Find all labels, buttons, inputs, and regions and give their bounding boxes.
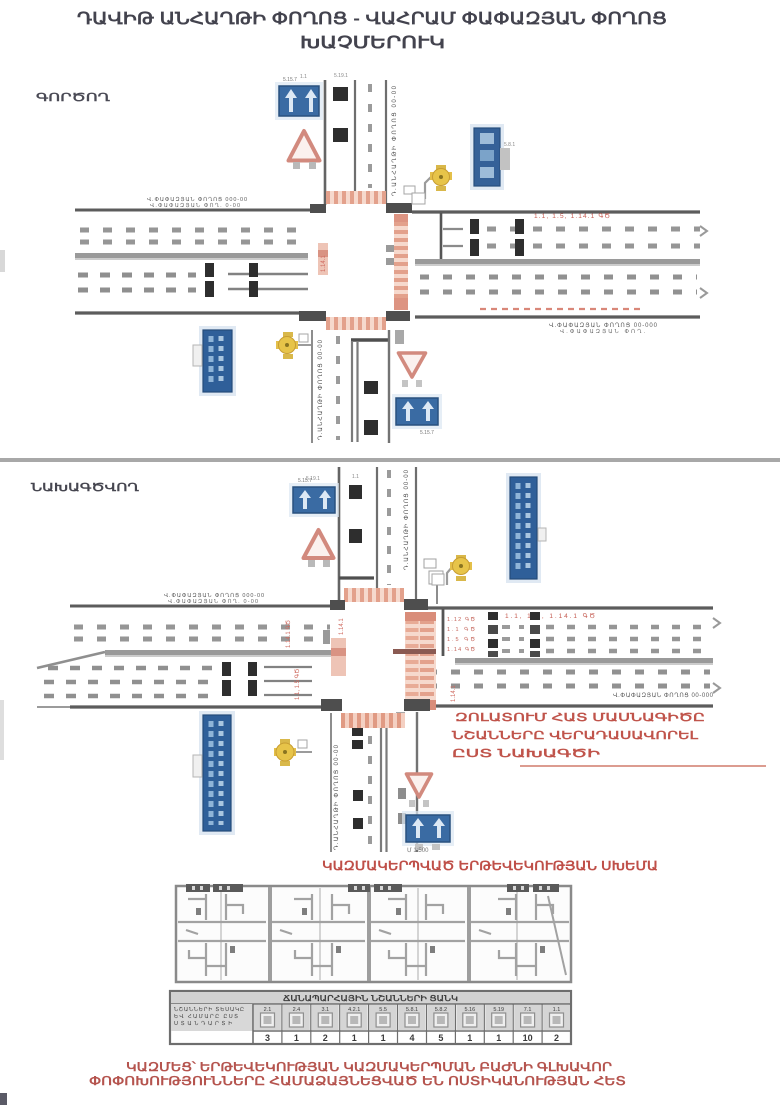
svg-text:1.1, 1.5, 1.14.1 ԳԾ: 1.1, 1.5, 1.14.1 ԳԾ: [534, 212, 610, 220]
svg-text:1.1 ԳԾ: 1.1 ԳԾ: [447, 626, 475, 633]
svg-text:Վ.ՓԱՓԱԶՅԱՆ ՓՈՂ.: Վ.ՓԱՓԱԶՅԱՆ ՓՈՂ.: [560, 328, 645, 335]
svg-text:5.15.7: 5.15.7: [298, 478, 312, 484]
svg-text:5.5: 5.5: [379, 1007, 387, 1013]
svg-text:ԿԱԶՄԵՑ՝ ԵՐԹԵՎԵԿՈՒԹՅԱՆ ԿԱԶՄԱԿԵՐ: ԿԱԶՄԵՑ՝ ԵՐԹԵՎԵԿՈՒԹՅԱՆ ԿԱԶՄԱԿԵՐՊՄԱՆ ԲԱԺՆԻ…: [126, 1060, 612, 1074]
svg-text:ԽԱՉՄԵՐՈՒԿ: ԽԱՉՄԵՐՈՒԿ: [300, 34, 445, 52]
svg-text:Վ.ՓԱՓԱԶՅԱՆ ՓՈՂՈՑ 000-00: Վ.ՓԱՓԱԶՅԱՆ ՓՈՂՈՑ 000-00: [164, 592, 264, 599]
svg-text:4.2.1: 4.2.1: [348, 1007, 360, 1013]
svg-text:ԶՈԼԱՏՈՒՄ ՀԱՏ ՄԱՍՆԱԳԻԾԸ: ԶՈԼԱՏՈՒՄ ՀԱՏ ՄԱՍՆԱԳԻԾԸ: [455, 712, 705, 724]
svg-text:1.1: 1.1: [553, 1007, 561, 1013]
svg-text:ՃԱՆԱՊԱՐՀԱՅԻՆ ՆՇԱՆՆԵՐԻ ՑԱՆԿ: ՃԱՆԱՊԱՐՀԱՅԻՆ ՆՇԱՆՆԵՐԻ ՑԱՆԿ: [283, 994, 458, 1003]
svg-text:1.14.1: 1.14.1: [321, 255, 327, 272]
svg-text:5.8.2: 5.8.2: [435, 1007, 447, 1013]
svg-text:5.8.1: 5.8.1: [504, 142, 515, 148]
svg-text:ԸՍՏ ՆԱԽԱԳԾԻ: ԸՍՏ ՆԱԽԱԳԾԻ: [452, 748, 601, 760]
svg-text:10: 10: [523, 1033, 533, 1043]
svg-text:2.1: 2.1: [264, 1007, 272, 1013]
svg-text:Դ.ԱՆՀԱՂԹԻ ՓՈՂՈՑ 00-00: Դ.ԱՆՀԱՂԹԻ ՓՈՂՈՑ 00-00: [333, 744, 340, 850]
svg-text:ՓՈՓՈԽՈՒԹՅՈՒՆՆԵՐԸ ՀԱՄԱՁԱՅՆԵՑՎԱԾ: ՓՈՓՈԽՈՒԹՅՈՒՆՆԵՐԸ ՀԱՄԱՁԱՅՆԵՑՎԱԾ ԵՆ ՈՍՏԻԿԱ…: [89, 1074, 626, 1088]
svg-text:5.15.7: 5.15.7: [420, 430, 434, 436]
svg-text:5.16: 5.16: [464, 1007, 475, 1013]
svg-text:Վ.ՓԱՓԱԶՅԱՆ ՓՈՂՈՑ 00-000: Վ.ՓԱՓԱԶՅԱՆ ՓՈՂՈՑ 00-000: [613, 692, 714, 699]
svg-text:5.19: 5.19: [493, 1007, 504, 1013]
svg-text:1.1: 1.1: [300, 74, 307, 80]
svg-text:1.1: 1.1: [352, 474, 359, 480]
svg-text:5.8.1: 5.8.1: [406, 1007, 418, 1013]
svg-text:5.15.7: 5.15.7: [283, 77, 297, 83]
svg-text:1.12 ԳԾ: 1.12 ԳԾ: [447, 616, 475, 623]
svg-text:1: 1: [496, 1033, 501, 1043]
svg-text:4: 4: [409, 1033, 414, 1043]
svg-text:Դ.ԱՆՀԱՂԹԻ ՓՈՂՈՑ 00-00: Դ.ԱՆՀԱՂԹԻ ՓՈՂՈՑ 00-00: [391, 85, 398, 196]
svg-text:2.4: 2.4: [293, 1007, 301, 1013]
svg-text:Վ.ՓԱՓԱԶՅԱՆ ՓՈՂՈՑ 000-00: Վ.ՓԱՓԱԶՅԱՆ ՓՈՂՈՑ 000-00: [147, 196, 247, 203]
svg-text:ՆՇԱՆՆԵՐԻ ՏԵՍԱԿԸ: ՆՇԱՆՆԵՐԻ ՏԵՍԱԿԸ: [174, 1006, 244, 1013]
svg-text:1: 1: [294, 1033, 299, 1043]
svg-text:7.1: 7.1: [524, 1007, 532, 1013]
svg-text:1: 1: [381, 1033, 386, 1043]
svg-text:1.14.1 ԳԾ: 1.14.1 ԳԾ: [285, 620, 292, 648]
svg-text:3.1: 3.1: [321, 1007, 329, 1013]
svg-text:ՍՏԱՆԴԱՐՏԻ: ՍՏԱՆԴԱՐՏԻ: [174, 1020, 232, 1027]
svg-text:3: 3: [265, 1033, 270, 1043]
svg-text:Դ.ԱՆՀԱՂԹԻ ՓՈՂՈՑ 00-00: Դ.ԱՆՀԱՂԹԻ ՓՈՂՈՑ 00-00: [403, 469, 410, 570]
svg-text:ԴԱՎԻԹ ԱՆՀԱՂԹԻ ՓՈՂՈՑ - ՎԱՀՐԱՄ Փ: ԴԱՎԻԹ ԱՆՀԱՂԹԻ ՓՈՂՈՑ - ՎԱՀՐԱՄ ՓԱՓԱԶՅԱՆ ՓՈ…: [77, 10, 667, 28]
svg-text:5.19.1: 5.19.1: [334, 73, 348, 79]
svg-text:1.5 ԳԾ: 1.5 ԳԾ: [447, 636, 475, 643]
svg-text:ՆՇԱՆՆԵՐԸ ՎԵՐԱԴԱՍԱՎՈՐԵԼ: ՆՇԱՆՆԵՐԸ ՎԵՐԱԴԱՍԱՎՈՐԵԼ: [451, 730, 700, 742]
svg-text:2: 2: [323, 1033, 328, 1043]
svg-text:1.14.1: 1.14.1: [339, 618, 345, 635]
svg-text:Վ.ՓԱՓԱԶՅԱՆ ՓՈՂՈՑ 00-000: Վ.ՓԱՓԱԶՅԱՆ ՓՈՂՈՑ 00-000: [549, 322, 658, 329]
svg-text:Մ 1:500: Մ 1:500: [407, 847, 429, 854]
svg-text:1: 1: [352, 1033, 357, 1043]
svg-text:2: 2: [554, 1033, 559, 1043]
svg-text:1.1, 1.5 ԳԾ: 1.1, 1.5 ԳԾ: [294, 669, 301, 700]
svg-text:ԳՈՐԾՈՂ: ԳՈՐԾՈՂ: [36, 92, 111, 104]
svg-text:ՆԱԽԱԳԾՎՈՂ: ՆԱԽԱԳԾՎՈՂ: [30, 482, 140, 494]
svg-text:ԿԱԶՄԱԿԵՐՊՎԱԾ ԵՐԹԵՎԵԿՈՒԹՅԱՆ ՍԽԵ: ԿԱԶՄԱԿԵՐՊՎԱԾ ԵՐԹԵՎԵԿՈՒԹՅԱՆ ՍԽԵՄԱ: [322, 859, 658, 873]
svg-text:Դ.ԱՆՀԱՂԹԻ ՓՈՂՈՑ 00-00: Դ.ԱՆՀԱՂԹԻ ՓՈՂՈՑ 00-00: [317, 339, 324, 440]
svg-text:1: 1: [467, 1033, 472, 1043]
svg-text:5: 5: [438, 1033, 443, 1043]
svg-text:1.14.1: 1.14.1: [451, 685, 457, 702]
svg-text:1.14 ԳԾ: 1.14 ԳԾ: [447, 646, 475, 653]
